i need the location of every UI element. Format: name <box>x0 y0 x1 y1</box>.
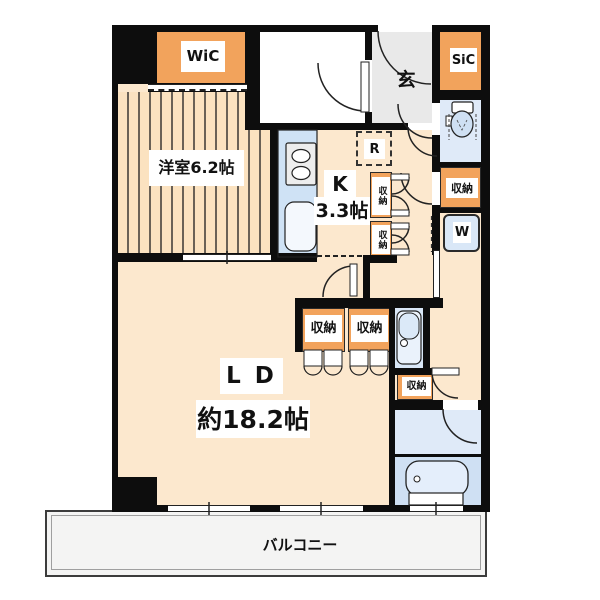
fixtures-layer <box>0 0 600 600</box>
door-panel <box>350 264 357 296</box>
living-dining-label: L D <box>220 358 283 394</box>
bathtub-icon <box>406 461 468 505</box>
bifold-door-icon <box>370 366 388 375</box>
storage-label: 収納 <box>305 315 342 342</box>
door-arc-icon <box>443 409 477 443</box>
storage-label: 収納 <box>372 225 390 254</box>
refrigerator-label: R <box>364 139 385 159</box>
living-dining-size-label: 約18.2帖 <box>196 400 310 438</box>
door-arc-icon <box>323 266 354 297</box>
bifold-door-icon <box>350 366 368 375</box>
storage-label: 収納 <box>351 315 388 342</box>
wic-label: WiC <box>181 41 225 72</box>
western-room-label: 洋室6.2帖 <box>149 150 244 186</box>
door-panel <box>361 62 369 112</box>
kitchen-label: K <box>324 170 356 197</box>
bifold-door-icon <box>350 350 368 366</box>
stove-icon <box>286 143 316 185</box>
door-arc-icon <box>318 63 366 111</box>
door-panel <box>391 249 409 255</box>
toilet-icon <box>446 102 476 140</box>
sink-icon <box>285 202 316 251</box>
storage-label: 収納 <box>402 377 431 396</box>
vanity-icon <box>397 311 421 364</box>
door-panel <box>391 210 409 216</box>
door-arc-icon <box>398 104 432 138</box>
door-arc-icon <box>432 372 458 398</box>
bifold-door-icon <box>304 350 322 366</box>
washer-label: W <box>453 222 471 243</box>
kitchen-size-label: 3.3帖 <box>314 197 370 225</box>
balcony-label: バルコニー <box>240 534 360 556</box>
sic-label: SiC <box>450 48 477 72</box>
door-panel <box>391 223 409 229</box>
floor-plan: WiC 洋室6.2帖 玄 SiC K 3.3帖 R 収納 収納 収納 W 収納 … <box>0 0 600 600</box>
door-panel <box>391 174 409 180</box>
storage-label: 収納 <box>446 178 478 198</box>
storage-label: 収納 <box>372 177 390 215</box>
door-panel <box>432 368 459 375</box>
entrance-label: 玄 <box>394 67 418 93</box>
bifold-door-icon <box>324 366 342 375</box>
bifold-door-icon <box>370 350 388 366</box>
bifold-door-icon <box>324 350 342 366</box>
bifold-door-icon <box>304 366 322 375</box>
